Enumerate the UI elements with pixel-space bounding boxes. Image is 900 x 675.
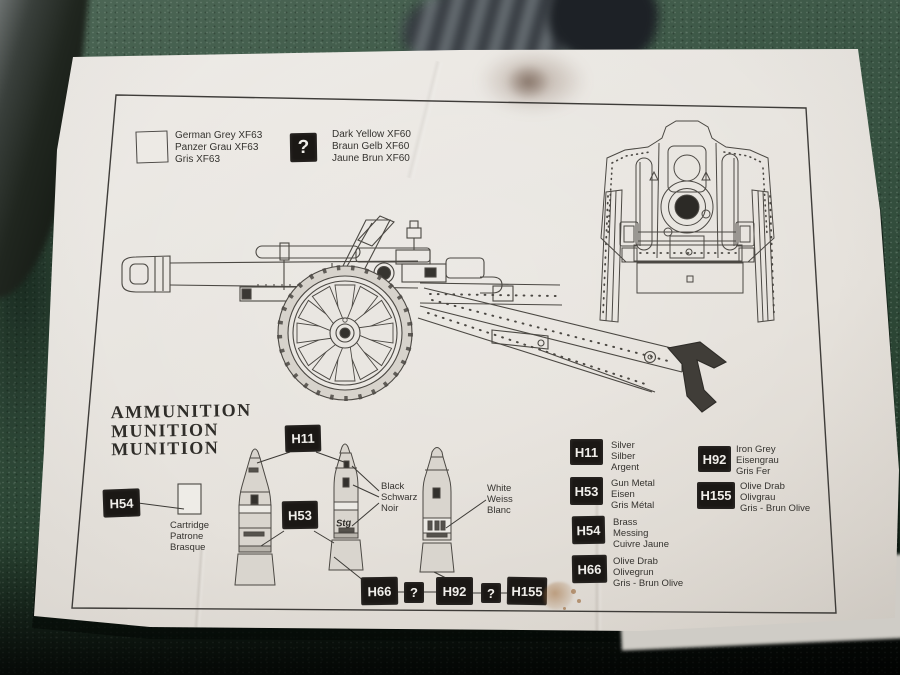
label-line: Messing: [613, 528, 669, 539]
label-line: Black: [381, 481, 417, 492]
label-line: Cartridge: [170, 520, 209, 531]
paint-chip-h92-case: H92: [436, 577, 473, 605]
label-line: Olive Drab: [613, 556, 683, 567]
paint-chip-h66-case: H66: [361, 577, 398, 606]
side-view-wheel: [278, 266, 412, 400]
white-callout-labels: White Weiss Blanc: [487, 483, 513, 516]
label-line: Jaune Brun XF60: [332, 153, 411, 165]
label-line: Brass: [613, 517, 669, 528]
key-labels-h53: Gun Metal Eisen Gris Métal: [611, 478, 655, 511]
label-line: Olivgrau: [740, 492, 810, 503]
label-line: Patrone: [170, 531, 209, 542]
label-line: Braun Gelb XF60: [332, 141, 411, 153]
label-line: Cuivre Jaune: [613, 539, 669, 550]
label-line: Olive Drab: [740, 481, 810, 492]
shell-drawing-2: [329, 444, 363, 570]
ammunition-heading: AMMUNITION MUNITION MUNITION: [111, 401, 253, 459]
label-line: Gris Fer: [736, 466, 779, 477]
label-line: Brasque: [170, 542, 209, 553]
printed-line-art: [0, 0, 900, 675]
label-line: Dark Yellow XF60: [332, 129, 411, 141]
key-chip-h66: H66: [572, 555, 607, 584]
label-line: Schwarz: [381, 492, 417, 503]
paint-chip-h54-cartridge: H54: [103, 488, 141, 517]
stain-dot: [571, 589, 576, 594]
label-line: Panzer Grau XF63: [175, 142, 262, 154]
label-line: Iron Grey: [736, 444, 779, 455]
label-line: Gris - Brun Olive: [613, 578, 683, 589]
question-chip-2: ?: [481, 583, 501, 603]
label-line: Gris XF63: [175, 154, 262, 166]
shell-stencil-marking: Stg: [336, 517, 352, 529]
label-line: Weiss: [487, 494, 513, 505]
key-chip-h53: H53: [570, 477, 603, 505]
label-line: Gris Métal: [611, 500, 655, 511]
shell-drawing-1: [235, 449, 275, 585]
key-chip-h155: H155: [697, 482, 735, 509]
black-callout-labels: Black Schwarz Noir: [381, 481, 417, 514]
key-labels-h155: Olive Drab Olivgrau Gris - Brun Olive: [740, 481, 810, 514]
key-chip-h11: H11: [570, 439, 603, 465]
dark-yellow-color-labels: Dark Yellow XF60 Braun Gelb XF60 Jaune B…: [332, 129, 411, 165]
instruction-sheet-paper: German Grey XF63 Panzer Grau XF63 Gris X…: [0, 0, 900, 675]
photo-scene: German Grey XF63 Panzer Grau XF63 Gris X…: [0, 0, 900, 675]
key-labels-h11: Silver Silber Argent: [611, 440, 639, 473]
label-line: Gun Metal: [611, 478, 655, 489]
stain-dot: [563, 607, 566, 610]
key-chip-h54: H54: [572, 516, 605, 545]
label-line: Blanc: [487, 505, 513, 516]
label-line: Silber: [611, 451, 639, 462]
key-labels-h66: Olive Drab Olivegrun Gris - Brun Olive: [613, 556, 683, 589]
cartridge-outline: [178, 484, 201, 514]
label-line: White: [487, 483, 513, 494]
label-line: Argent: [611, 462, 639, 473]
howitzer-front-view-drawing: [600, 121, 774, 322]
stain-dot: [577, 599, 581, 603]
paint-chip-h11-shell-tip: H11: [285, 425, 322, 453]
cartridge-labels: Cartridge Patrone Brasque: [170, 520, 209, 553]
shell-drawing-3: [420, 448, 454, 573]
label-line: Eisengrau: [736, 455, 779, 466]
question-mark-swatch: ?: [290, 133, 318, 162]
paint-chip-h53-shell-body: H53: [282, 501, 318, 530]
grey-color-swatch: [135, 130, 168, 163]
key-labels-h92: Iron Grey Eisengrau Gris Fer: [736, 444, 779, 477]
key-chip-h92: H92: [698, 446, 731, 472]
label-line: Gris - Brun Olive: [740, 503, 810, 514]
paint-chip-h155-case: H155: [507, 577, 547, 606]
question-chip-1: ?: [404, 582, 424, 603]
heading-line: AMMUNITION: [111, 401, 252, 422]
label-line: Olivegrun: [613, 567, 683, 578]
label-line: Silver: [611, 440, 639, 451]
label-line: Eisen: [611, 489, 655, 500]
label-line: German Grey XF63: [175, 130, 262, 142]
grey-color-labels: German Grey XF63 Panzer Grau XF63 Gris X…: [175, 130, 262, 166]
label-line: Noir: [381, 503, 417, 514]
key-labels-h54: Brass Messing Cuivre Jaune: [613, 517, 669, 550]
heading-line: MUNITION: [111, 438, 252, 459]
